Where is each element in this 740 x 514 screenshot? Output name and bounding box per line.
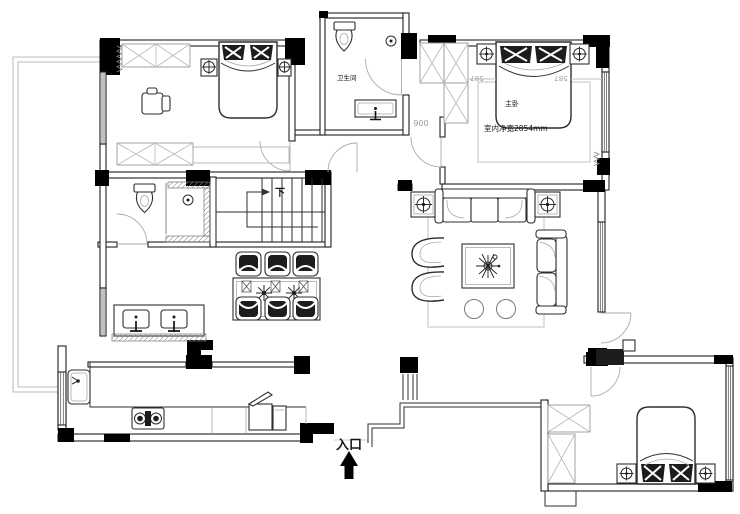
tiled-wall [166,236,210,242]
kitchen-sink-icon [68,370,90,404]
dim-label: 587 [554,74,567,82]
dining-chair-icon [265,297,290,320]
balcony-outline [13,57,100,392]
window-icon [58,372,66,425]
master-width-label: 室内净宽2854mm [484,123,548,133]
tiled-wall [168,182,210,188]
nightstand-icon [278,59,291,76]
washbasin-icon [355,100,396,120]
armchair-icon [412,272,444,301]
stove-icon [132,408,164,429]
plan-step-outline [545,491,576,506]
vanity-area [112,305,206,341]
window-icon [100,288,106,336]
floor-plan-canvas: 卫生间 [0,0,740,514]
door-arc-icon [328,143,357,172]
nightstand-icon [696,464,715,483]
wardrobe-icon [420,43,468,123]
side-table-lamp-icon [535,192,560,217]
entrance-arrow-icon [340,451,358,479]
door-arc-icon [411,137,441,167]
corridor [368,374,541,447]
room-code-label: 006 [413,118,428,127]
wardrobe-icon [548,405,590,483]
entrance: 入口 [334,438,368,479]
stair-direction-arrow-icon [262,189,270,196]
sofa-three-seat-icon [435,189,535,223]
stool-icon [497,300,516,319]
bedroom-top-left [117,42,291,165]
side-table-lamp-icon [411,192,436,217]
nightstand-icon [617,464,636,483]
tiled-wall [204,188,210,236]
door-arc-icon [117,214,147,244]
bathroom-label: 卫生间 [337,73,357,82]
door-arc-icon [260,141,290,171]
nightstand-icon [201,59,217,76]
stairs-down-label: 下 [275,187,285,199]
coffee-table-icon [462,244,514,288]
wardrobe-icon [117,143,193,165]
shower-head-icon [386,36,396,46]
double-bed-icon [496,42,571,128]
window-icon [100,72,106,144]
shower-head-icon [183,195,193,205]
window-icon [726,366,733,480]
dining-chair-icon [293,297,318,320]
double-bed-icon [219,42,277,118]
tiled-wall [112,334,206,341]
dining-chair-icon [236,297,261,320]
placemat-icon [299,281,308,292]
kitchen [68,362,306,433]
toilet-icon [334,22,355,51]
loveseat-icon [536,230,567,314]
toilet-icon [134,184,155,213]
stool-icon [465,300,484,319]
rice-cooker-icon [249,392,286,430]
double-bed-icon [637,407,695,484]
master-bedroom-label: 主卧 [505,99,519,108]
door-arc-icon [366,59,402,95]
low-cabinet-icon [193,147,289,163]
placemat-icon [242,281,251,292]
wardrobe-icon [122,44,190,67]
dim-label: 587 [470,74,483,82]
window-icon [602,72,609,152]
dining-area [233,252,320,320]
desk-chair-icon [142,88,170,114]
insulation-squiggle-icon [594,152,599,166]
staircase: 下 [216,178,325,242]
dining-chair-icon [236,252,261,276]
dining-chair-icon [265,252,290,276]
nightstand-icon [570,44,589,64]
placemat-icon [271,281,280,292]
window-icon [598,222,605,312]
entrance-label: 入口 [336,438,362,453]
dining-chair-icon [293,252,318,276]
bathroom-top: 卫生间 [334,22,396,120]
bedroom-bottom-right [545,340,715,506]
master-bedroom: 587 587 主卧 室内净宽2854mm 006 [413,42,602,162]
door-arc-icon [601,313,631,343]
armchair-icon [412,238,444,267]
nightstand-icon [477,44,496,64]
living-room [411,189,567,327]
door-arc-icon [591,367,620,396]
